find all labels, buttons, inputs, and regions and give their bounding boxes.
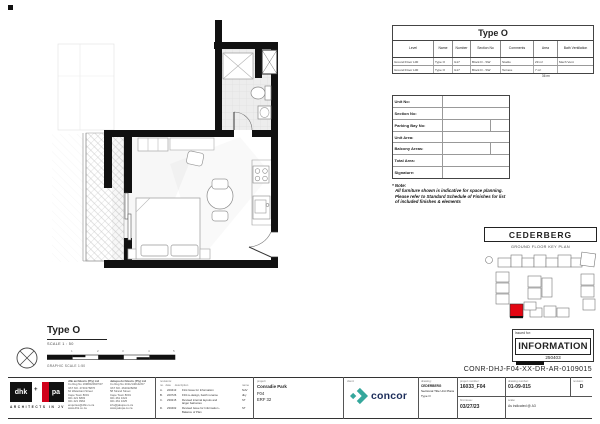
rev-desc: F04 re-design, batch rename (182, 393, 218, 397)
scale-header: scale: (508, 398, 515, 402)
cell-name: Type O (434, 58, 453, 65)
project-header: project: (257, 379, 266, 383)
scale-value: As indicated @ A3 (508, 404, 536, 408)
total-area: 36 m² (534, 74, 558, 78)
form-value (443, 155, 509, 166)
col-header: Number (453, 41, 471, 57)
key-plan (484, 250, 598, 324)
cell-level: Ground Floor L00 (393, 66, 434, 73)
drawing-number-header: drawing number: (508, 379, 529, 383)
dhk-logo: dhk (10, 382, 32, 402)
drawing-line: Sectional Title Unit Plans (421, 389, 454, 393)
cell-level: Ground Floor L00 (393, 58, 434, 65)
form-value (443, 108, 509, 119)
jakupa-logo: pa (42, 382, 64, 402)
corner-mark (8, 5, 13, 10)
cell-section: Block D - SW (471, 66, 501, 73)
client-name: concor (371, 390, 407, 402)
entrance-door (249, 232, 278, 257)
chair (212, 179, 228, 189)
cell-section: Block D - SW (471, 58, 501, 65)
cell-area: 7 m² (534, 66, 558, 73)
rev-no: A. (160, 388, 163, 392)
rev-no: D. (160, 406, 163, 410)
jakupa-logo-redbar (42, 382, 49, 402)
form-value (443, 120, 509, 131)
note-block: * Note: All furniture shown is indicativ… (392, 183, 567, 205)
drawing-number: 01-09-015 (508, 384, 531, 390)
floor-plan (50, 14, 320, 324)
shower (223, 53, 253, 79)
nightstand (200, 249, 210, 259)
rev-no: C. (160, 398, 163, 402)
rev-name: dky (242, 393, 246, 397)
basin (258, 106, 271, 119)
unit-table-header-row: Level Name Number Section No Comments Ar… (393, 41, 593, 58)
note-line: of included finishes & elements (392, 199, 567, 204)
firm2-contact: Jakupa Architects (Pty) Ltd Co Reg No 20… (110, 380, 152, 411)
cell-comments: Terrace (501, 66, 534, 73)
form-label: Unit Area: (393, 132, 443, 143)
rev-no: B. (160, 393, 163, 397)
stamp-code: 250403 (513, 355, 593, 360)
revision-value: D (573, 384, 590, 390)
first-issue-header: first issue: (460, 398, 473, 402)
issue-stamp: Issued for: INFORMATION 250403 (512, 329, 594, 362)
col-header: Section No (471, 41, 501, 57)
chair (212, 211, 228, 221)
form-label: Unit No: (393, 96, 443, 107)
client-logo: concor (350, 387, 407, 405)
revisions-col-headers: no. date description (160, 383, 188, 387)
form-label: Parking Bay No: (393, 120, 443, 131)
drawing-symbol-icon (14, 345, 40, 371)
firm1-contact: dhk architects (Pty) Ltd Co Reg No 1998/… (68, 380, 106, 411)
project-name: Conradie Park (257, 384, 287, 389)
rev-name: NdV (242, 388, 247, 392)
rev-date: 220726 (167, 393, 176, 397)
form-label: Signature: (393, 167, 443, 178)
sink (253, 196, 270, 219)
desk-chair (186, 150, 204, 166)
keyplan-subtitle: GROUND FLOOR KEY PLAN (484, 245, 597, 249)
form-label: Total Area: (393, 155, 443, 166)
toilet (251, 86, 271, 100)
client-header: client: (347, 379, 354, 383)
plan-scale: SCALE 1 : 50 (47, 342, 74, 346)
plan-title: Type O (47, 325, 80, 336)
rev-date: 230402 (167, 406, 176, 410)
stamp-mark (516, 361, 544, 365)
unit-schedule-table: Type O Level Name Number Section No Comm… (392, 25, 594, 74)
col-header: Comments (501, 41, 534, 57)
plan-title-underline (47, 339, 107, 340)
pillow (141, 245, 168, 256)
rev-name: ST (242, 406, 246, 410)
cell-number: G17 (453, 58, 471, 65)
project-number: 16033_F04 (460, 384, 485, 390)
pillow (171, 245, 198, 256)
rev-desc: Balance of Plan (182, 410, 202, 414)
form-value (443, 96, 509, 107)
cell-comments: Studio (501, 58, 534, 65)
table-row: Ground Floor L00 Type O G17 Block D - SW… (393, 66, 593, 73)
drawing-line: Type O (421, 394, 431, 398)
graphic-scale-label: GRAPHIC SCALE 1:50 (47, 364, 85, 368)
keyplan-title: CEDERBERG (484, 227, 597, 242)
nightstand (128, 249, 136, 259)
highlighted-unit (510, 304, 523, 317)
project-erf: ERF 32 (257, 397, 271, 402)
first-issue-date: 03/27/23 (460, 404, 479, 410)
duct-shaft (262, 50, 277, 74)
cell-vent (558, 66, 593, 73)
col-header: Name (434, 41, 453, 57)
rev-desc: First Issue for Information (182, 388, 214, 392)
unit-info-form: Unit No: Section No: Parking Bay No: Uni… (392, 95, 510, 179)
cell-vent: Mech Vent (558, 58, 593, 65)
form-label: Balcony Areas: (393, 143, 443, 154)
cell-area: 29 m² (534, 58, 558, 65)
drawing-sheet: Type O Level Name Number Section No Comm… (0, 0, 600, 424)
project-phase: F04 (257, 391, 264, 396)
cell-name: Type O (434, 66, 453, 73)
col-header: Area (534, 41, 558, 57)
revision-header: revision: (573, 379, 583, 383)
plus-sign: + (34, 387, 38, 393)
keyplan-marker (486, 257, 493, 264)
col-header: Level (393, 41, 434, 57)
col-header: Bath Ventilation (558, 41, 593, 57)
wardrobe (138, 138, 168, 151)
concor-icon (350, 387, 368, 405)
rev-date: 220413 (167, 388, 176, 392)
project-number-header: project number: (460, 379, 479, 383)
form-value (443, 143, 509, 154)
dhk-logo-text: dhk (15, 389, 27, 396)
table-row: Ground Floor L00 Type O G17 Block D - SW… (393, 58, 593, 66)
document-number: CONR-DHJ-F04-XX-DR-AR-0109015 (400, 366, 592, 373)
graphic-scale-bar (47, 353, 177, 363)
form-label: Section No: (393, 108, 443, 119)
rev-date: 230215 (167, 398, 176, 402)
form-value (443, 167, 509, 178)
drawing-line: CEDERBERG (421, 384, 441, 388)
rev-desc: larger balconies (182, 401, 202, 405)
drawing-header: drawing: (421, 379, 432, 383)
brand-tagline: ARCHITECTS IN JV (10, 405, 65, 409)
stamp-label: Issued for: (515, 331, 531, 335)
rev-name: ST (242, 398, 246, 402)
jakupa-logo-text: pa (52, 389, 60, 396)
unit-table-title: Type O (393, 26, 593, 41)
stamp-value: INFORMATION (515, 338, 591, 355)
cell-number: G17 (453, 66, 471, 73)
bed (128, 198, 210, 259)
form-value (443, 132, 509, 143)
